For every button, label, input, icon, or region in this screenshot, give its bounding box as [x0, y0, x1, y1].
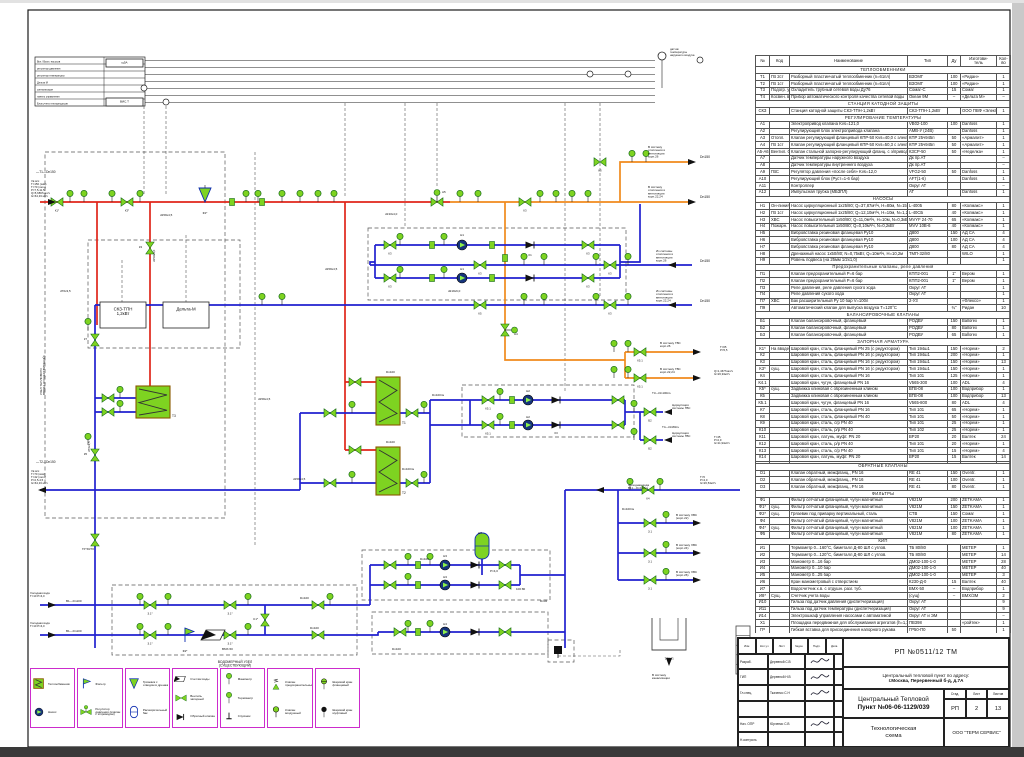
spec-row: А3Отопл.Клапан регулирующий фланцевый КП…: [756, 135, 1011, 142]
floor-drain-trap: [652, 618, 686, 650]
legend-item-label: Грязевик с отводом в дренаж: [143, 681, 168, 687]
spec-cell: 100: [948, 477, 961, 484]
spec-cell: 9: [997, 606, 1011, 613]
spec-cell: Бак расширительный Ру 10 бар V=100л: [790, 298, 908, 305]
spec-cell: «Ридан»: [961, 74, 997, 81]
valve-symbol: К1*: [51, 198, 63, 213]
instrument-symbol: [67, 190, 73, 202]
spec-cell: [770, 420, 790, 427]
spec-cell: Он-линия: [770, 203, 790, 210]
sig-date: [834, 685, 843, 701]
spec-cell: Подогр. узла: [770, 87, 790, 94]
equipment-box: СКЗ-ТПН1,2кВт: [100, 302, 146, 328]
spec-cell: [948, 599, 961, 606]
spec-cell: 1: [997, 373, 1011, 380]
spec-cell: Шаровой кран, чугун, фланцевый PN 16: [790, 400, 908, 407]
spec-row: Б3Клапан балансировочный, фланцевыйPOДВУ…: [756, 332, 1011, 339]
spec-cell: [770, 531, 790, 538]
schematic-label: ГР 50/70: [82, 547, 94, 551]
valve-legend-icon: [174, 691, 188, 705]
legend-item-label: Манометр: [238, 678, 252, 681]
spec-cell: 200: [948, 497, 961, 504]
spec-cell: ГВ 2ст: [770, 74, 790, 81]
spec-cell: Реле давления сухого хода: [790, 291, 908, 298]
spec-cell: Тип 101: [908, 448, 948, 455]
spec-cell: Ридан: [961, 305, 997, 312]
spec-cell: Ballorex: [961, 325, 997, 332]
valve-tag: К5.1: [485, 407, 491, 411]
spec-row: И6Кран манометровый с отверстиемК230-Д-0…: [756, 579, 1011, 586]
spec-cell: КПР 25ч945п: [908, 142, 948, 149]
schematic-label: Циркуляциясистемы ГВС: [672, 403, 691, 410]
sheet-title: Технологическая схема: [843, 718, 944, 748]
schematic-label: Т4—Dn80пэ: [662, 425, 679, 429]
inst-legend-icon: [222, 691, 236, 705]
spec-cell: К5: [756, 393, 770, 400]
dashed-enclosure: [368, 228, 626, 300]
instrument-symbol: [137, 623, 143, 635]
spec-cell: 1: [997, 420, 1011, 427]
spec-cell: [948, 162, 961, 169]
spec-cell: Водприбор: [961, 393, 997, 400]
valve-symbol: К5.1: [634, 348, 646, 363]
spec-cell: 1: [997, 210, 1011, 217]
spec-cell: «Норем»: [961, 366, 997, 373]
spec-cell: 65: [948, 216, 961, 223]
spec-cell: Площадка передвижная для обслуживания аг…: [790, 620, 908, 627]
spec-row: И2Термометр 0...120°С, биметалл Д-80 ШЛ …: [756, 552, 1011, 559]
funnel-legend-icon: [127, 677, 141, 691]
legend-item-label: Шаровой кран муфтовый: [333, 709, 358, 715]
schematic-label: 100:80: [516, 587, 526, 591]
pipe-blue: [357, 632, 378, 635]
spec-cell: ADL: [961, 380, 997, 387]
spec-cell: [770, 599, 790, 606]
spec-cell: 80: [948, 203, 961, 210]
spec-cell: Б2: [756, 325, 770, 332]
schematic-label: ТРАП: [665, 657, 674, 661]
spec-cell: ZETKAMA: [961, 524, 997, 531]
schematic-label: Ф1*: [203, 211, 209, 215]
spec-cell: Ф5: [756, 531, 770, 538]
spec-cell: Термометр 0...160°С, биметалл Д-80 ШЛ с …: [790, 545, 908, 552]
hx-tag: Т2: [402, 491, 406, 495]
spec-cell: V821M: [908, 518, 948, 525]
spec-cell: «Норем»: [961, 414, 997, 421]
spec-cell: «Норем»: [961, 420, 997, 427]
spec-row: К8Шаровой кран, сталь, фланцевый PN 40Ти…: [756, 414, 1011, 421]
spec-cell: [770, 305, 790, 312]
valve-tag: К4: [646, 497, 650, 501]
spec-row: СКЗСтанция катодной защиты СКЗ-ТПН-1,2кВ…: [756, 108, 1011, 115]
spec-cell: [770, 271, 790, 278]
spec-cell: К14: [756, 454, 770, 461]
valve-symbol: [406, 409, 418, 417]
vibration-insert: [416, 582, 421, 589]
spec-cell: [948, 176, 961, 183]
schematic-label: В систему ГВСкорп.22,24: [660, 367, 681, 374]
spec-cell: 24: [997, 434, 1011, 441]
spec-cell: 50: [948, 626, 961, 633]
spec-cell: [961, 162, 997, 169]
legend-item: Манометр: [222, 672, 263, 686]
spec-cell: [770, 230, 790, 237]
valve-symbol: [349, 378, 361, 386]
spec-cell: Дк пр.АТ: [908, 155, 948, 162]
valve-tag: К5.1: [637, 385, 643, 389]
spec-cell: О2: [756, 477, 770, 484]
spec-cell: Манометр 0...25 бар: [790, 572, 908, 579]
valve-symbol: К3: [582, 241, 594, 256]
flow-arrow: [688, 159, 696, 165]
spec-cell: Ballorex: [961, 332, 997, 339]
organization-name: ООО "ТЕРМ СЕРВИС": [944, 718, 1009, 748]
pump-symbol: [440, 627, 450, 637]
spec-cell: А7: [756, 155, 770, 162]
spec-cell: [961, 626, 997, 633]
spec-cell: 2-У3: [908, 298, 948, 305]
spec-row: Н6Вибровставка резиновая фланцевая Ру10Д…: [756, 237, 1011, 244]
spec-cell: [770, 545, 790, 552]
valve-tag: З.1*: [227, 612, 233, 616]
spec-cell: VFG2-50: [908, 169, 948, 176]
spec-cell: [770, 121, 790, 128]
instrument-symbol: [631, 428, 637, 440]
signature-scribble: [805, 685, 834, 701]
heat-exchanger: Т3: [136, 386, 176, 418]
spec-cell: 15: [948, 448, 961, 455]
equipment-box: ВИС.Т: [106, 98, 143, 106]
valve-symbol: З.1*: [144, 601, 156, 616]
spec-cell: V821M: [908, 524, 948, 531]
spec-cell: Термометр 0...120°С, биметалл Д-80 ШЛ с …: [790, 552, 908, 559]
spec-row: И1Термометр 0...160°С, биметалл Д-80 ШЛ …: [756, 545, 1011, 552]
spec-cell: [948, 565, 961, 572]
signature-table: ИзмКол.учЛист№док.Подп.ДатаРазраб.Деревн…: [738, 638, 843, 748]
spec-cell: 1: [997, 497, 1011, 504]
schematic-label: Q=1,467Гкал/чG=26,94м³/ч: [714, 369, 734, 376]
instrument-symbol: [85, 318, 91, 330]
project-title-line2: Пункт №06-06-1129/039: [857, 704, 929, 712]
schematic-label: d159x4,5: [258, 397, 271, 401]
valve-symbol: З.1*: [144, 631, 156, 646]
spec-cell: Округ АТ: [908, 599, 948, 606]
flow-arrow: [48, 602, 56, 608]
instrument-symbol: [405, 553, 411, 565]
spec-row: О2Клапан обратный, межфланц., PN 16RE 41…: [756, 477, 1011, 484]
schematic-label: Vв м/сТ=70 (зим)Т=42 (лето)Р=2,5-4,5G=64…: [31, 469, 48, 485]
spec-cell: МЕТЕР: [961, 552, 997, 559]
valve-tag: К3*: [125, 209, 130, 213]
spec-cell: [948, 250, 961, 257]
spec-cell: Б3: [756, 332, 770, 339]
spec-cell: И8*: [756, 592, 770, 599]
spec-cell: 25: [948, 420, 961, 427]
spec-cell: П1: [756, 271, 770, 278]
spec-cell: Электрошкаф управления насосами с автома…: [790, 613, 908, 620]
vibration-insert: [430, 242, 435, 249]
spec-cell: Шаровой кран, сталь, фланцевый PN 16: [790, 407, 908, 414]
spec-cell: сущ.: [770, 366, 790, 373]
legend-item-label: Регулятор давления (клапан с э/приводом): [95, 708, 120, 717]
spec-cell: ZETKAMA: [961, 504, 997, 511]
spec-cell: А5-А6: [756, 148, 770, 155]
spec-cell: MVV 10В-6: [908, 223, 948, 230]
spec-cell: Danfoss: [961, 169, 997, 176]
spec-cell: П3: [756, 284, 770, 291]
spec-cell: сущ.: [770, 504, 790, 511]
spec-row: Т4Косвен. вод.Прибор автоматического кон…: [756, 94, 1011, 101]
spec-cell: [770, 477, 790, 484]
stage-header: Стад.: [944, 689, 966, 699]
automation-row-label: Блок учета теплоресурсов: [37, 103, 68, 106]
spec-cell: 1: [997, 142, 1011, 149]
instrument-symbol: [593, 253, 599, 265]
spec-cell: POДВУ: [908, 318, 948, 325]
spec-col-header: №: [756, 56, 770, 67]
schematic-label: Dn100: [386, 370, 395, 374]
valve-tag: З.1*: [147, 612, 153, 616]
instrument-symbol: [421, 401, 427, 413]
spec-cell: 1: [997, 531, 1011, 538]
instrument-symbol: [165, 593, 171, 605]
schematic-label: ВМХ-50: [222, 647, 233, 651]
inst-legend-icon: [222, 672, 236, 686]
valve-tag: К3: [388, 252, 392, 256]
spec-cell: Вибровставка резиновая фланцевая Ру10: [790, 230, 908, 237]
spec-cell: Н1: [756, 203, 770, 210]
spec-row: П4Реле давления сухого ходаОкруг АТ1: [756, 291, 1011, 298]
spec-row: К10Шаровой кран, сталь, р/р PN 40Тип 102…: [756, 427, 1011, 434]
spec-cell: 1: [997, 298, 1011, 305]
spec-cell: 100: [948, 393, 961, 400]
valve-symbol: К5.1: [482, 421, 494, 436]
spec-cell: [770, 332, 790, 339]
spec-cell: Oventr.: [961, 477, 997, 484]
spec-cell: ВМХ/ЗМ: [961, 592, 997, 599]
spec-cell: 1: [997, 504, 1011, 511]
spec-section-title: КИП: [756, 538, 1011, 545]
legend-item: Спускник: [222, 710, 263, 724]
valve-tag: К3: [388, 285, 392, 289]
spec-cell: 1: [997, 318, 1011, 325]
spec-cell: 1: [997, 620, 1011, 627]
spec-cell: 1: [997, 74, 1011, 81]
spec-cell: Н6: [756, 237, 770, 244]
spec-cell: Шаровой кран, сталь, фланцевый PN 16 (с …: [790, 352, 908, 359]
instrument-symbol: [593, 293, 599, 305]
spec-cell: Ф4: [756, 518, 770, 525]
schematic-label: Т=65Р=5,5: [720, 345, 728, 352]
spec-cell: 1": [948, 278, 961, 285]
pump-symbol: [440, 580, 450, 590]
spec-cell: 1: [997, 386, 1011, 393]
schematic-label: d159x4,5: [325, 267, 338, 271]
spec-cell: Гибкая вставка для присоединения напорно…: [790, 626, 908, 633]
spec-cell: «Армалит»: [961, 142, 997, 149]
spec-section-title: БАЛАНСИРОВОЧНЫЕ КЛАПАНЫ: [756, 312, 1011, 319]
sheets-header: Листов: [987, 689, 1009, 699]
legend-item-label: Термометр: [238, 697, 253, 700]
valve-symbol: К5: [474, 301, 486, 316]
spec-cell: К13: [756, 448, 770, 455]
sensor-note: датчиктемпературынаружного воздуха: [670, 47, 695, 57]
spec-cell: ХВС: [770, 298, 790, 305]
spec-cell: 100: [948, 386, 961, 393]
spec-row: К1*На вводе сущ.Шаровой кран, сталь, фла…: [756, 346, 1011, 353]
sig-date: [834, 701, 843, 717]
spec-cell: RE 41: [908, 484, 948, 491]
flow-arrow: [693, 550, 701, 556]
spec-cell: К230-Д-0: [908, 579, 948, 586]
spec-cell: И5: [756, 572, 770, 579]
valve-symbol: [91, 534, 99, 546]
spec-cell: [770, 484, 790, 491]
spec-row: А2Регулирующий блок электропривода клапа…: [756, 128, 1011, 135]
flow-arrow: [693, 520, 701, 526]
sig-header-cell: Дата: [826, 638, 844, 654]
automation-row-label: панель управления: [37, 96, 60, 99]
spec-cell: ГВС: [770, 169, 790, 176]
legend-box: ФильтрРегулятор давления (клапан с э/при…: [77, 668, 122, 728]
spec-cell: –: [948, 586, 961, 593]
spec-cell: И3: [756, 558, 770, 565]
spec-cell: 50: [948, 148, 961, 155]
spec-cell: 50: [948, 135, 961, 142]
valve-symbol: Б2: [644, 408, 656, 423]
spec-cell: Кран манометровый с отверстием: [790, 579, 908, 586]
spec-cell: Клапан балансировочный, фланцевый: [790, 325, 908, 332]
spec-cell: Электропривод клапана Kvs=121,0: [790, 121, 908, 128]
spec-cell: RE 41: [908, 477, 948, 484]
spec-row: Ф1Фильтр сетчатый фланцевый, чугун магни…: [756, 497, 1011, 504]
instrument-symbol: [611, 340, 617, 352]
project-title-line1: Центральный Тепловой: [858, 696, 929, 704]
spec-cell: К4.1: [756, 380, 770, 387]
instrument-symbol: [349, 471, 355, 483]
spec-cell: АД СА: [961, 244, 997, 251]
spec-cell: Ballorex: [961, 318, 997, 325]
legend-item: Фильтр: [79, 677, 120, 691]
spec-cell: Водприбор: [961, 586, 997, 593]
spec-cell: А12: [756, 189, 770, 196]
spec-row: ГРГибкая вставка для присоединения напор…: [756, 626, 1011, 633]
schematic-label: Из системыотопления ивентиляциикорп.22,2…: [656, 289, 673, 303]
instrument-symbol: [663, 568, 669, 580]
schematic-label: Vв м/сТ=150 (зим)Т=70 (лето)Р=7,5-11,5Q=…: [31, 179, 51, 198]
regv-legend-icon: [79, 705, 93, 719]
spec-section-title: СТАНЦИЯ КАТОДНОЙ ЗАЩИТЫ: [756, 101, 1011, 108]
spec-cell: [770, 407, 790, 414]
spec-cell: Б1: [756, 318, 770, 325]
spec-section-title: РЕГУЛИРОВАНИЕ ТЕМПЕРАТУРЫ: [756, 114, 1011, 121]
spec-row: К5*сущ.Задвижка клиновая с обрезиненным …: [756, 386, 1011, 393]
schematic-label: ВОДОМЕРНЫЙ УЗЕЛ(СУЩЕСТВУЮЩИЙ): [218, 660, 252, 668]
spec-cell: 1: [997, 524, 1011, 531]
spec-cell: «Норем»: [961, 346, 997, 353]
vibration-insert: [260, 199, 265, 206]
spec-table: №КодНаименованиеТипДуИзготови- тельКол- …: [755, 55, 1011, 633]
valve-symbol: К3: [384, 274, 396, 289]
schematic-label: В систему ХВС(корп.26): [676, 570, 698, 577]
spec-cell: 1: [997, 470, 1011, 477]
instrument-symbol: [421, 471, 427, 483]
spec-cell: [770, 155, 790, 162]
sig-date: [834, 717, 843, 733]
dirt-trap-symbol: [199, 185, 211, 202]
spec-cell: POДВУ: [908, 325, 948, 332]
spec-row: К4Шаровой кран, сталь, фланцевый PN 16Ти…: [756, 373, 1011, 380]
instrument-symbol: [427, 620, 433, 632]
valve-symbol: [312, 631, 324, 639]
spec-section-title: ТЕПЛООБМЕННИКИ: [756, 67, 1011, 74]
spec-cell: Ф1: [756, 497, 770, 504]
relief-legend-icon: [269, 677, 283, 691]
legend-item-label: Фильтр: [95, 683, 105, 686]
spec-cell: 40: [997, 579, 1011, 586]
spec-row: К12Шаровой кран, сталь, р/р PN 40Тип 101…: [756, 441, 1011, 448]
spec-cell: Фильтр сетчатый фланцевый, чугун магнитн…: [790, 504, 908, 511]
spec-row: И8*Сущ.Счетчик учета воды(сущ)–ВМХ/ЗМ2: [756, 592, 1011, 599]
valve-symbol: К5.1: [634, 374, 646, 389]
spec-cell: Манометр 0...10 бар: [790, 565, 908, 572]
spec-cell: Тип 194ш1: [908, 359, 948, 366]
schematic-label: Т=45Р=2,9G=11,94м³/ч: [714, 435, 730, 445]
spec-cell: ТБ 80/80: [908, 552, 948, 559]
schematic-label: Dn100пэ: [432, 393, 444, 397]
spec-cell: 1: [997, 407, 1011, 414]
project-title: Центральный Тепловой Пункт №06-06-1129/0…: [843, 689, 944, 718]
spec-cell: [770, 606, 790, 613]
spec-cell: 1: [997, 108, 1011, 115]
instrument-symbol: [297, 190, 303, 202]
spec-section-title: Предохранительные клапаны, реле давления: [756, 264, 1011, 271]
spec-row: А8Датчик температуры внутреннего воздуха…: [756, 162, 1011, 169]
spec-cell: Н8: [756, 250, 770, 257]
spec-cell: сущ.: [770, 386, 790, 393]
spec-cell: 1: [997, 626, 1011, 633]
spec-cell: [948, 189, 961, 196]
spec-row: К11Шаровой кран, латунь, муфт. PN 20ВР20…: [756, 434, 1011, 441]
schematic-label: d159x4,5: [293, 477, 306, 481]
spec-cell: [770, 393, 790, 400]
spec-cell: 80: [948, 244, 961, 251]
spec-cell: 1: [997, 87, 1011, 94]
spec-cell: КПП2-001: [908, 278, 948, 285]
spec-cell: К9: [756, 420, 770, 427]
legend-item: Клапан предохранительный: [269, 677, 310, 691]
spec-cell: Сущ.: [770, 592, 790, 599]
meter-legend-icon: [174, 672, 188, 686]
spec-cell: Косвен. вод.: [770, 94, 790, 101]
spec-cell: Насос повысительный 1х50/80; Q=0,10м³/ч,…: [790, 223, 908, 230]
spec-cell: [961, 291, 997, 298]
spec-cell: И2: [756, 552, 770, 559]
sheet-header: Лист: [966, 689, 987, 699]
spec-cell: Фильтр сетчатый фланцевый, чугун магнитн…: [790, 524, 908, 531]
spec-cell: 50: [948, 169, 961, 176]
instrument-symbol: [349, 401, 355, 413]
instrument-symbol: [541, 293, 547, 305]
spec-cell: 1: [997, 203, 1011, 210]
spec-row: Н7Вибровставка резиновая фланцевая Ру10Д…: [756, 244, 1011, 251]
spec-cell: 125: [948, 373, 961, 380]
spec-cell: И7: [756, 586, 770, 593]
spec-row: О1Клапан обратный, межфланц., PN 16RE 41…: [756, 470, 1011, 477]
instrument-symbol: [629, 150, 635, 162]
valve-tag: З.1: [648, 560, 652, 564]
spec-cell: 1": [948, 271, 961, 278]
